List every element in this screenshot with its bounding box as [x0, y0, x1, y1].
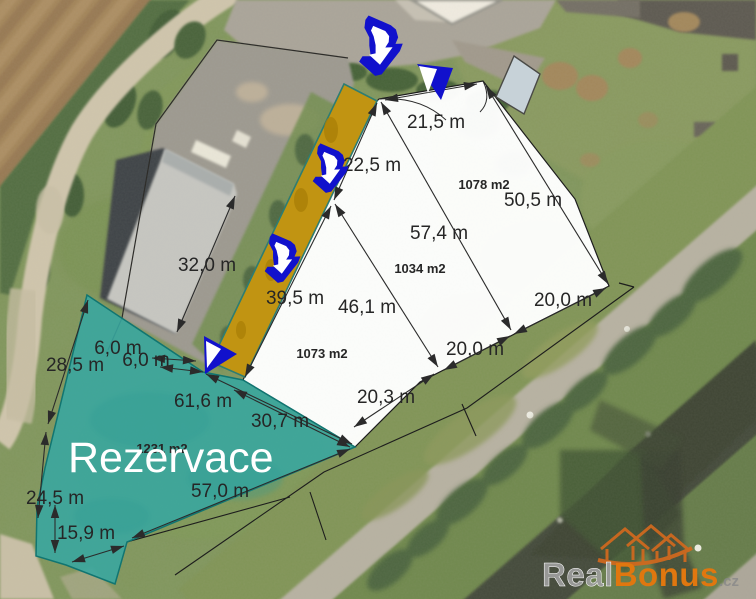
- svg-text:20,0 m: 20,0 m: [534, 290, 592, 311]
- svg-text:57,4 m: 57,4 m: [410, 223, 468, 244]
- svg-text:6,0 m: 6,0 m: [122, 350, 170, 371]
- svg-text:32,0 m: 32,0 m: [178, 255, 236, 276]
- svg-text:30,7 m: 30,7 m: [251, 411, 309, 432]
- svg-text:61,6 m: 61,6 m: [174, 391, 232, 412]
- svg-text:20,3 m: 20,3 m: [357, 387, 415, 408]
- svg-text:.cz: .cz: [719, 573, 739, 590]
- svg-text:39,5 m: 39,5 m: [266, 288, 324, 309]
- svg-text:RealBonus: RealBonus: [542, 556, 719, 593]
- svg-text:20,0 m: 20,0 m: [446, 339, 504, 360]
- svg-text:1034 m2: 1034 m2: [394, 261, 445, 276]
- svg-text:22,5 m: 22,5 m: [343, 155, 401, 176]
- svg-text:15,9 m: 15,9 m: [57, 523, 115, 544]
- svg-text:1078 m2: 1078 m2: [458, 177, 509, 192]
- svg-text:28,5 m: 28,5 m: [46, 355, 104, 376]
- svg-text:24,5 m: 24,5 m: [26, 488, 84, 509]
- svg-text:21,5 m: 21,5 m: [407, 112, 465, 133]
- svg-text:50,5 m: 50,5 m: [504, 190, 562, 211]
- svg-text:1073 m2: 1073 m2: [296, 346, 347, 361]
- svg-text:46,1 m: 46,1 m: [338, 297, 396, 318]
- svg-text:Rezervace: Rezervace: [68, 434, 274, 482]
- svg-text:57,0 m: 57,0 m: [191, 481, 249, 502]
